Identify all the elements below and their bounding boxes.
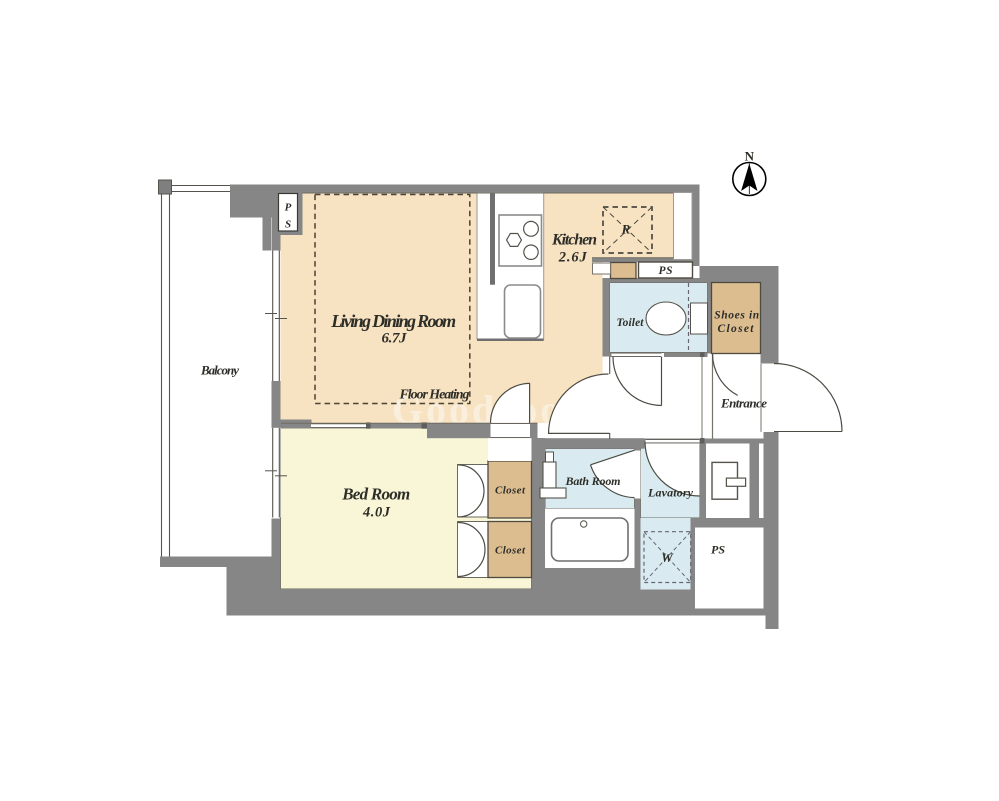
svg-text:R: R <box>621 222 631 237</box>
svg-text:4.0J: 4.0J <box>362 505 391 521</box>
svg-text:Balcony: Balcony <box>200 363 239 378</box>
svg-text:Kitchen: Kitchen <box>551 231 597 248</box>
svg-text:Bed Room: Bed Room <box>341 485 410 504</box>
svg-text:Closet: Closet <box>495 545 526 557</box>
svg-text:Closet: Closet <box>718 323 755 335</box>
svg-text:PS: PS <box>659 265 673 277</box>
svg-text:S: S <box>285 219 291 231</box>
svg-text:Bath Room: Bath Room <box>565 474 621 488</box>
svg-text:6.7J: 6.7J <box>382 331 408 347</box>
svg-text:Lavatory: Lavatory <box>647 486 694 500</box>
svg-text:Shoes in: Shoes in <box>714 310 759 322</box>
svg-text:P: P <box>285 202 292 214</box>
svg-text:W: W <box>661 550 674 565</box>
svg-text:Floor Heating: Floor Heating <box>399 388 470 403</box>
svg-text:Closet: Closet <box>495 485 526 497</box>
svg-text:N: N <box>745 149 755 164</box>
svg-text:Living Dining Room: Living Dining Room <box>330 311 456 331</box>
svg-text:2.6J: 2.6J <box>558 250 588 266</box>
svg-text:PS: PS <box>711 543 725 557</box>
svg-text:Entrance: Entrance <box>720 396 767 411</box>
svg-text:Toilet: Toilet <box>617 317 645 329</box>
